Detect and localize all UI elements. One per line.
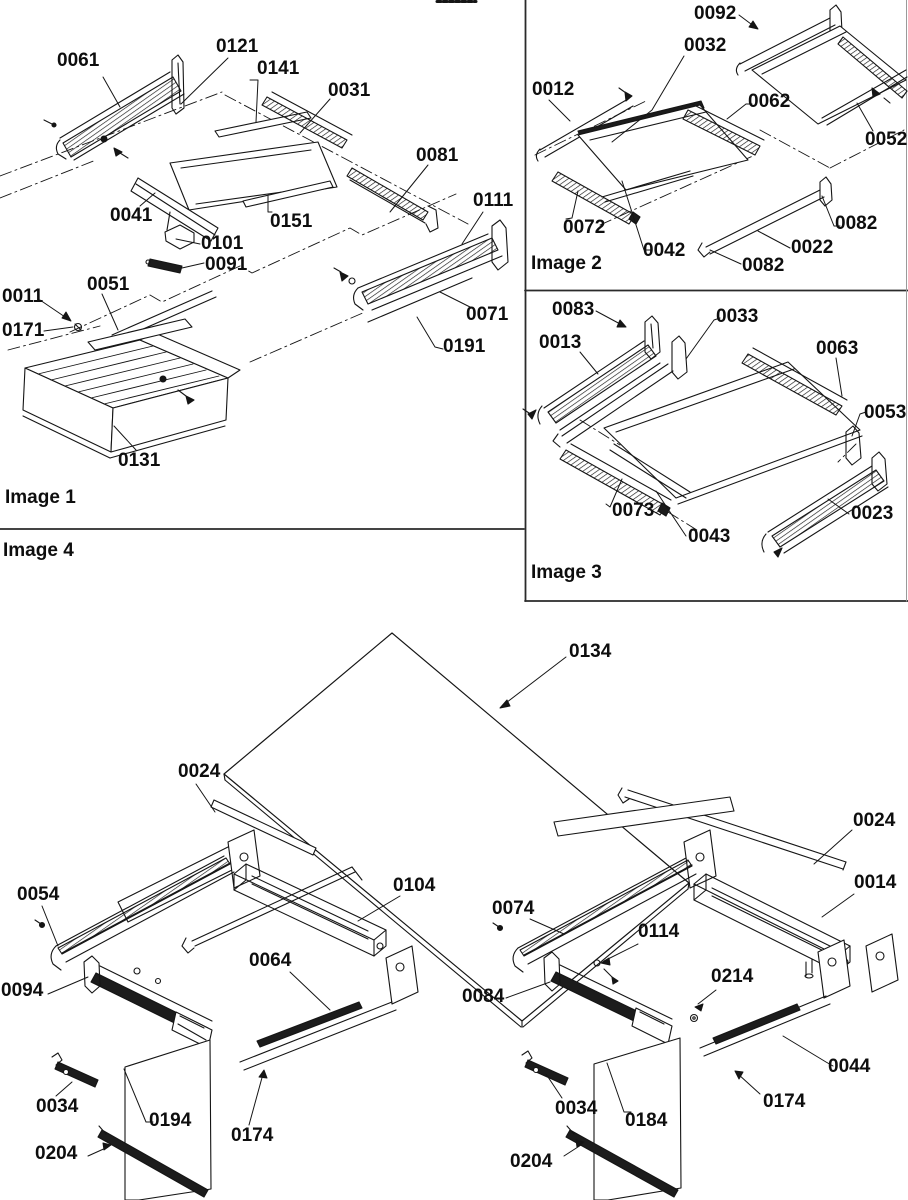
part-label-0052: 0052 <box>865 130 907 150</box>
part-label-0044: 0044 <box>828 1057 870 1077</box>
part-label-0204: 0204 <box>35 1144 77 1164</box>
part-label-0082: 0082 <box>742 256 784 276</box>
part-label-0072: 0072 <box>563 218 605 238</box>
part-label-0084: 0084 <box>462 987 504 1007</box>
part-label-0073: 0073 <box>612 501 654 521</box>
part-label-0131: 0131 <box>118 451 160 471</box>
part-label-0184: 0184 <box>625 1111 667 1131</box>
label-layer: 0061012101410031008100410151010100910111… <box>0 0 908 1200</box>
part-label-0062: 0062 <box>748 92 790 112</box>
part-label-0024: 0024 <box>178 762 220 782</box>
part-label-0111: 0111 <box>473 191 513 211</box>
part-label-0022: 0022 <box>791 238 833 258</box>
part-label-0031: 0031 <box>328 81 370 101</box>
part-label-0042: 0042 <box>643 241 685 261</box>
part-label-0033: 0033 <box>716 307 758 327</box>
part-label-0034: 0034 <box>36 1097 78 1117</box>
part-label-0011: 0011 <box>2 287 43 307</box>
part-label-0043: 0043 <box>688 527 730 547</box>
part-label-0051: 0051 <box>87 275 129 295</box>
part-label-0114: 0114 <box>638 922 679 942</box>
part-label-0194: 0194 <box>149 1111 191 1131</box>
part-label-0071: 0071 <box>466 305 508 325</box>
part-label-0204: 0204 <box>510 1152 552 1172</box>
part-label-0141: 0141 <box>257 59 299 79</box>
part-label-0032: 0032 <box>684 36 726 56</box>
part-label-0174: 0174 <box>231 1126 273 1146</box>
part-label-0191: 0191 <box>443 337 485 357</box>
part-label-0083: 0083 <box>552 300 594 320</box>
caption-image-4: Image 4 <box>3 541 74 561</box>
part-label-0023: 0023 <box>851 504 893 524</box>
part-label-0104: 0104 <box>393 876 435 896</box>
part-label-0054: 0054 <box>17 885 59 905</box>
part-label-0024: 0024 <box>853 811 895 831</box>
part-label-0061: 0061 <box>57 51 99 71</box>
caption-image-3: Image 3 <box>531 563 602 583</box>
part-label-0081: 0081 <box>416 146 458 166</box>
part-label-0171: 0171 <box>2 321 44 341</box>
part-label-0091: 0091 <box>205 255 247 275</box>
part-label-0092: 0092 <box>694 4 736 24</box>
part-label-0174: 0174 <box>763 1092 805 1112</box>
part-label-0121: 0121 <box>216 37 258 57</box>
part-label-0074: 0074 <box>492 899 534 919</box>
part-label-0013: 0013 <box>539 333 581 353</box>
part-label-0034: 0034 <box>555 1099 597 1119</box>
caption-image-1: Image 1 <box>5 488 76 508</box>
part-label-0094: 0094 <box>1 981 43 1001</box>
part-label-0101: 0101 <box>201 234 243 254</box>
part-label-0053: 0053 <box>864 403 906 423</box>
part-label-0014: 0014 <box>854 873 896 893</box>
part-label-0151: 0151 <box>270 212 312 232</box>
part-label-0214: 0214 <box>711 967 753 987</box>
part-label-0064: 0064 <box>249 951 291 971</box>
caption-image-2: Image 2 <box>531 254 602 274</box>
part-label-0063: 0063 <box>816 339 858 359</box>
part-label-0082: 0082 <box>835 214 877 234</box>
part-label-0041: 0041 <box>110 206 152 226</box>
part-label-0012: 0012 <box>532 80 574 100</box>
part-label-0134: 0134 <box>569 642 611 662</box>
